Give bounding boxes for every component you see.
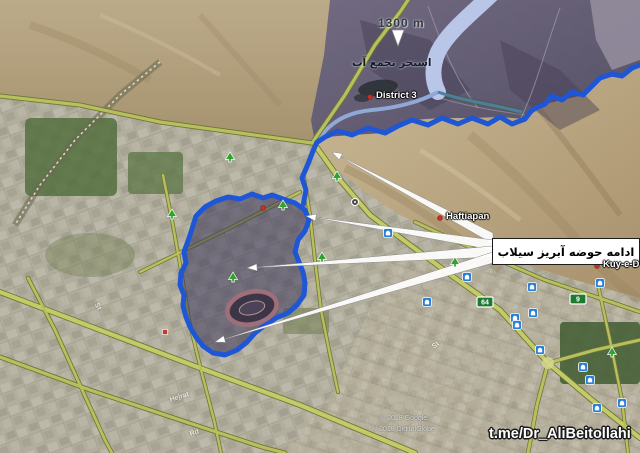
mosque-icon[interactable] <box>596 279 605 288</box>
svg-text:9: 9 <box>576 297 580 304</box>
map-graphics: 649 <box>0 0 640 453</box>
mosque-icon[interactable] <box>618 399 627 408</box>
mosque-icon[interactable] <box>529 309 538 318</box>
svg-text:64: 64 <box>481 300 489 307</box>
route-shield: 9 <box>570 294 586 304</box>
building-icon[interactable] <box>163 330 168 335</box>
route-shield: 64 <box>477 297 493 307</box>
mosque-icon[interactable] <box>536 346 545 355</box>
place-marker-dot[interactable] <box>368 95 373 100</box>
mosque-icon[interactable] <box>423 298 432 307</box>
poi-red-dot-icon[interactable] <box>261 206 266 211</box>
mosque-icon[interactable] <box>586 376 595 385</box>
roundabout-icon-center <box>354 201 356 203</box>
mosque-icon[interactable] <box>528 283 537 292</box>
mosque-icon[interactable] <box>513 321 522 330</box>
mosque-icon[interactable] <box>463 273 472 282</box>
flood-basin-callout-box: ادامه حوضه آبریز سیلاب <box>492 238 640 265</box>
place-marker-dot[interactable] <box>438 216 443 221</box>
mosque-icon[interactable] <box>579 363 588 372</box>
mosque-icon[interactable] <box>593 404 602 413</box>
mosque-icon[interactable] <box>384 229 393 238</box>
flood-basin-callout-text: ادامه حوضه آبریز سیلاب <box>498 245 635 259</box>
satellite-map-viewport[interactable]: 649 1300 m استخر تجمع آب ادامه حوضه آبری… <box>0 0 640 453</box>
